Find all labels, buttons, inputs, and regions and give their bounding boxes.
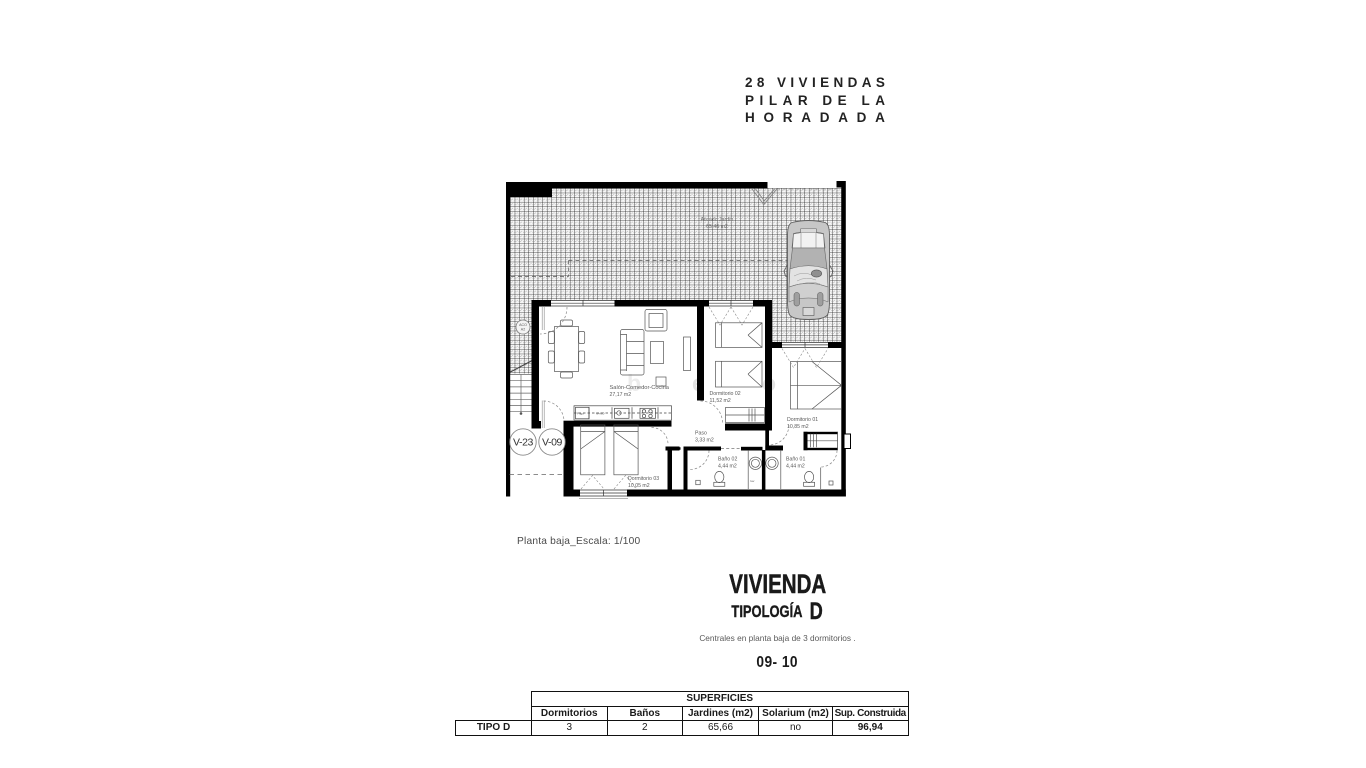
svg-text:Dormitorio 01: Dormitorio 01 <box>787 417 818 423</box>
svg-text:V-23: V-23 <box>513 437 534 449</box>
svg-text:Dormitorio 03: Dormitorio 03 <box>628 476 659 482</box>
svg-text:Paso: Paso <box>695 431 707 437</box>
svg-text:M+MO: M+MO <box>596 411 605 415</box>
svg-text:Baño 01: Baño 01 <box>786 457 805 463</box>
svg-text:3,33 m2: 3,33 m2 <box>695 438 714 444</box>
svg-text:Aislado Jardín: Aislado Jardín <box>701 217 734 223</box>
svg-text:Salón-Comedor-Cocina: Salón-Comedor-Cocina <box>610 385 670 391</box>
svg-text:Frigo: Frigo <box>577 412 584 416</box>
svg-text:Dormitorio 02: Dormitorio 02 <box>710 391 741 397</box>
svg-text:4,44 m2: 4,44 m2 <box>786 464 805 470</box>
svg-text:lav: lav <box>751 479 755 483</box>
svg-text:V-09: V-09 <box>542 437 563 449</box>
svg-text:10,05 m2: 10,05 m2 <box>628 483 650 489</box>
svg-text:A2: A2 <box>521 328 525 332</box>
svg-text:27,17 m2: 27,17 m2 <box>610 392 632 398</box>
svg-text:ACO: ACO <box>519 323 527 327</box>
svg-text:65,46 m2: 65,46 m2 <box>706 224 728 230</box>
svg-text:11,52 m2: 11,52 m2 <box>710 398 731 404</box>
svg-text:4,44 m2: 4,44 m2 <box>718 464 737 470</box>
svg-text:Baño 02: Baño 02 <box>718 457 737 463</box>
svg-text:10,85 m2: 10,85 m2 <box>787 424 809 430</box>
